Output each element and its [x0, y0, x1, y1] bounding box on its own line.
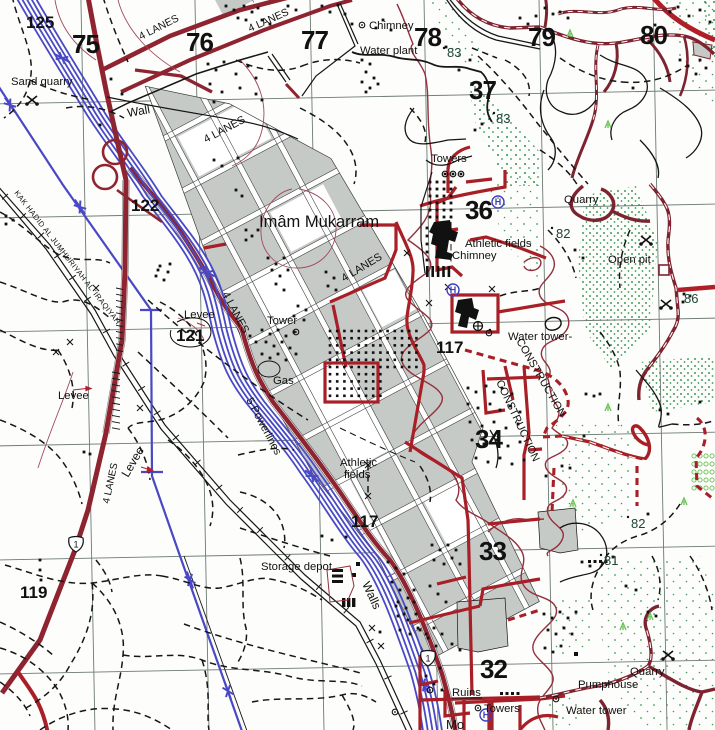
svg-text:83: 83 [447, 45, 461, 60]
svg-text:1: 1 [425, 654, 430, 664]
svg-text:H: H [450, 285, 457, 295]
svg-text:Imâm Mukarram: Imâm Mukarram [259, 213, 379, 231]
svg-text:H: H [495, 197, 502, 207]
svg-text:119: 119 [20, 583, 47, 602]
svg-text:36: 36 [465, 195, 492, 225]
svg-text:Mo: Mo [446, 717, 464, 730]
svg-text:83: 83 [496, 111, 510, 126]
svg-text:32: 32 [480, 654, 507, 684]
svg-text:80: 80 [640, 20, 667, 50]
svg-text:117: 117 [351, 512, 378, 531]
svg-text:1: 1 [73, 540, 78, 550]
svg-text:Pumphouse: Pumphouse [578, 679, 638, 691]
svg-text:121: 121 [176, 326, 204, 345]
svg-text:Levee: Levee [58, 390, 89, 402]
svg-text:Ruins: Ruins [452, 687, 481, 699]
svg-text:75: 75 [72, 29, 99, 59]
svg-text:Water tower: Water tower [566, 705, 627, 717]
svg-text:82: 82 [631, 516, 645, 531]
svg-text:86: 86 [684, 291, 698, 306]
svg-text:Athletic fields: Athletic fields [465, 238, 532, 250]
svg-text:77: 77 [301, 25, 328, 55]
svg-text:Athletic: Athletic [340, 457, 377, 469]
svg-text:Towers: Towers [431, 153, 467, 165]
svg-text:78: 78 [414, 22, 441, 52]
svg-text:Chimney: Chimney [369, 20, 414, 32]
svg-text:122: 122 [131, 196, 159, 215]
svg-text:fields: fields [344, 469, 371, 481]
svg-text:Gas: Gas [273, 375, 294, 387]
svg-text:Water plant: Water plant [360, 45, 418, 57]
svg-text:34: 34 [475, 424, 503, 454]
svg-text:Chimney: Chimney [452, 250, 497, 262]
svg-text:Quarry: Quarry [564, 194, 599, 206]
svg-text:Quarry: Quarry [630, 666, 665, 678]
svg-text:76: 76 [186, 27, 213, 57]
svg-text:Open pit: Open pit [608, 254, 652, 266]
svg-text:81: 81 [604, 553, 618, 568]
svg-text:125: 125 [26, 13, 54, 32]
svg-text:Sand quarry: Sand quarry [11, 76, 73, 88]
svg-text:37: 37 [469, 75, 496, 105]
svg-text:117: 117 [436, 338, 463, 357]
svg-text:Storage depot: Storage depot [261, 561, 333, 573]
svg-text:Towers: Towers [484, 703, 520, 715]
svg-text:82: 82 [556, 226, 570, 241]
svg-text:Tower: Tower [267, 315, 297, 327]
svg-text:79: 79 [528, 22, 555, 52]
svg-text:Levee: Levee [184, 309, 215, 321]
svg-text:33: 33 [479, 536, 506, 566]
